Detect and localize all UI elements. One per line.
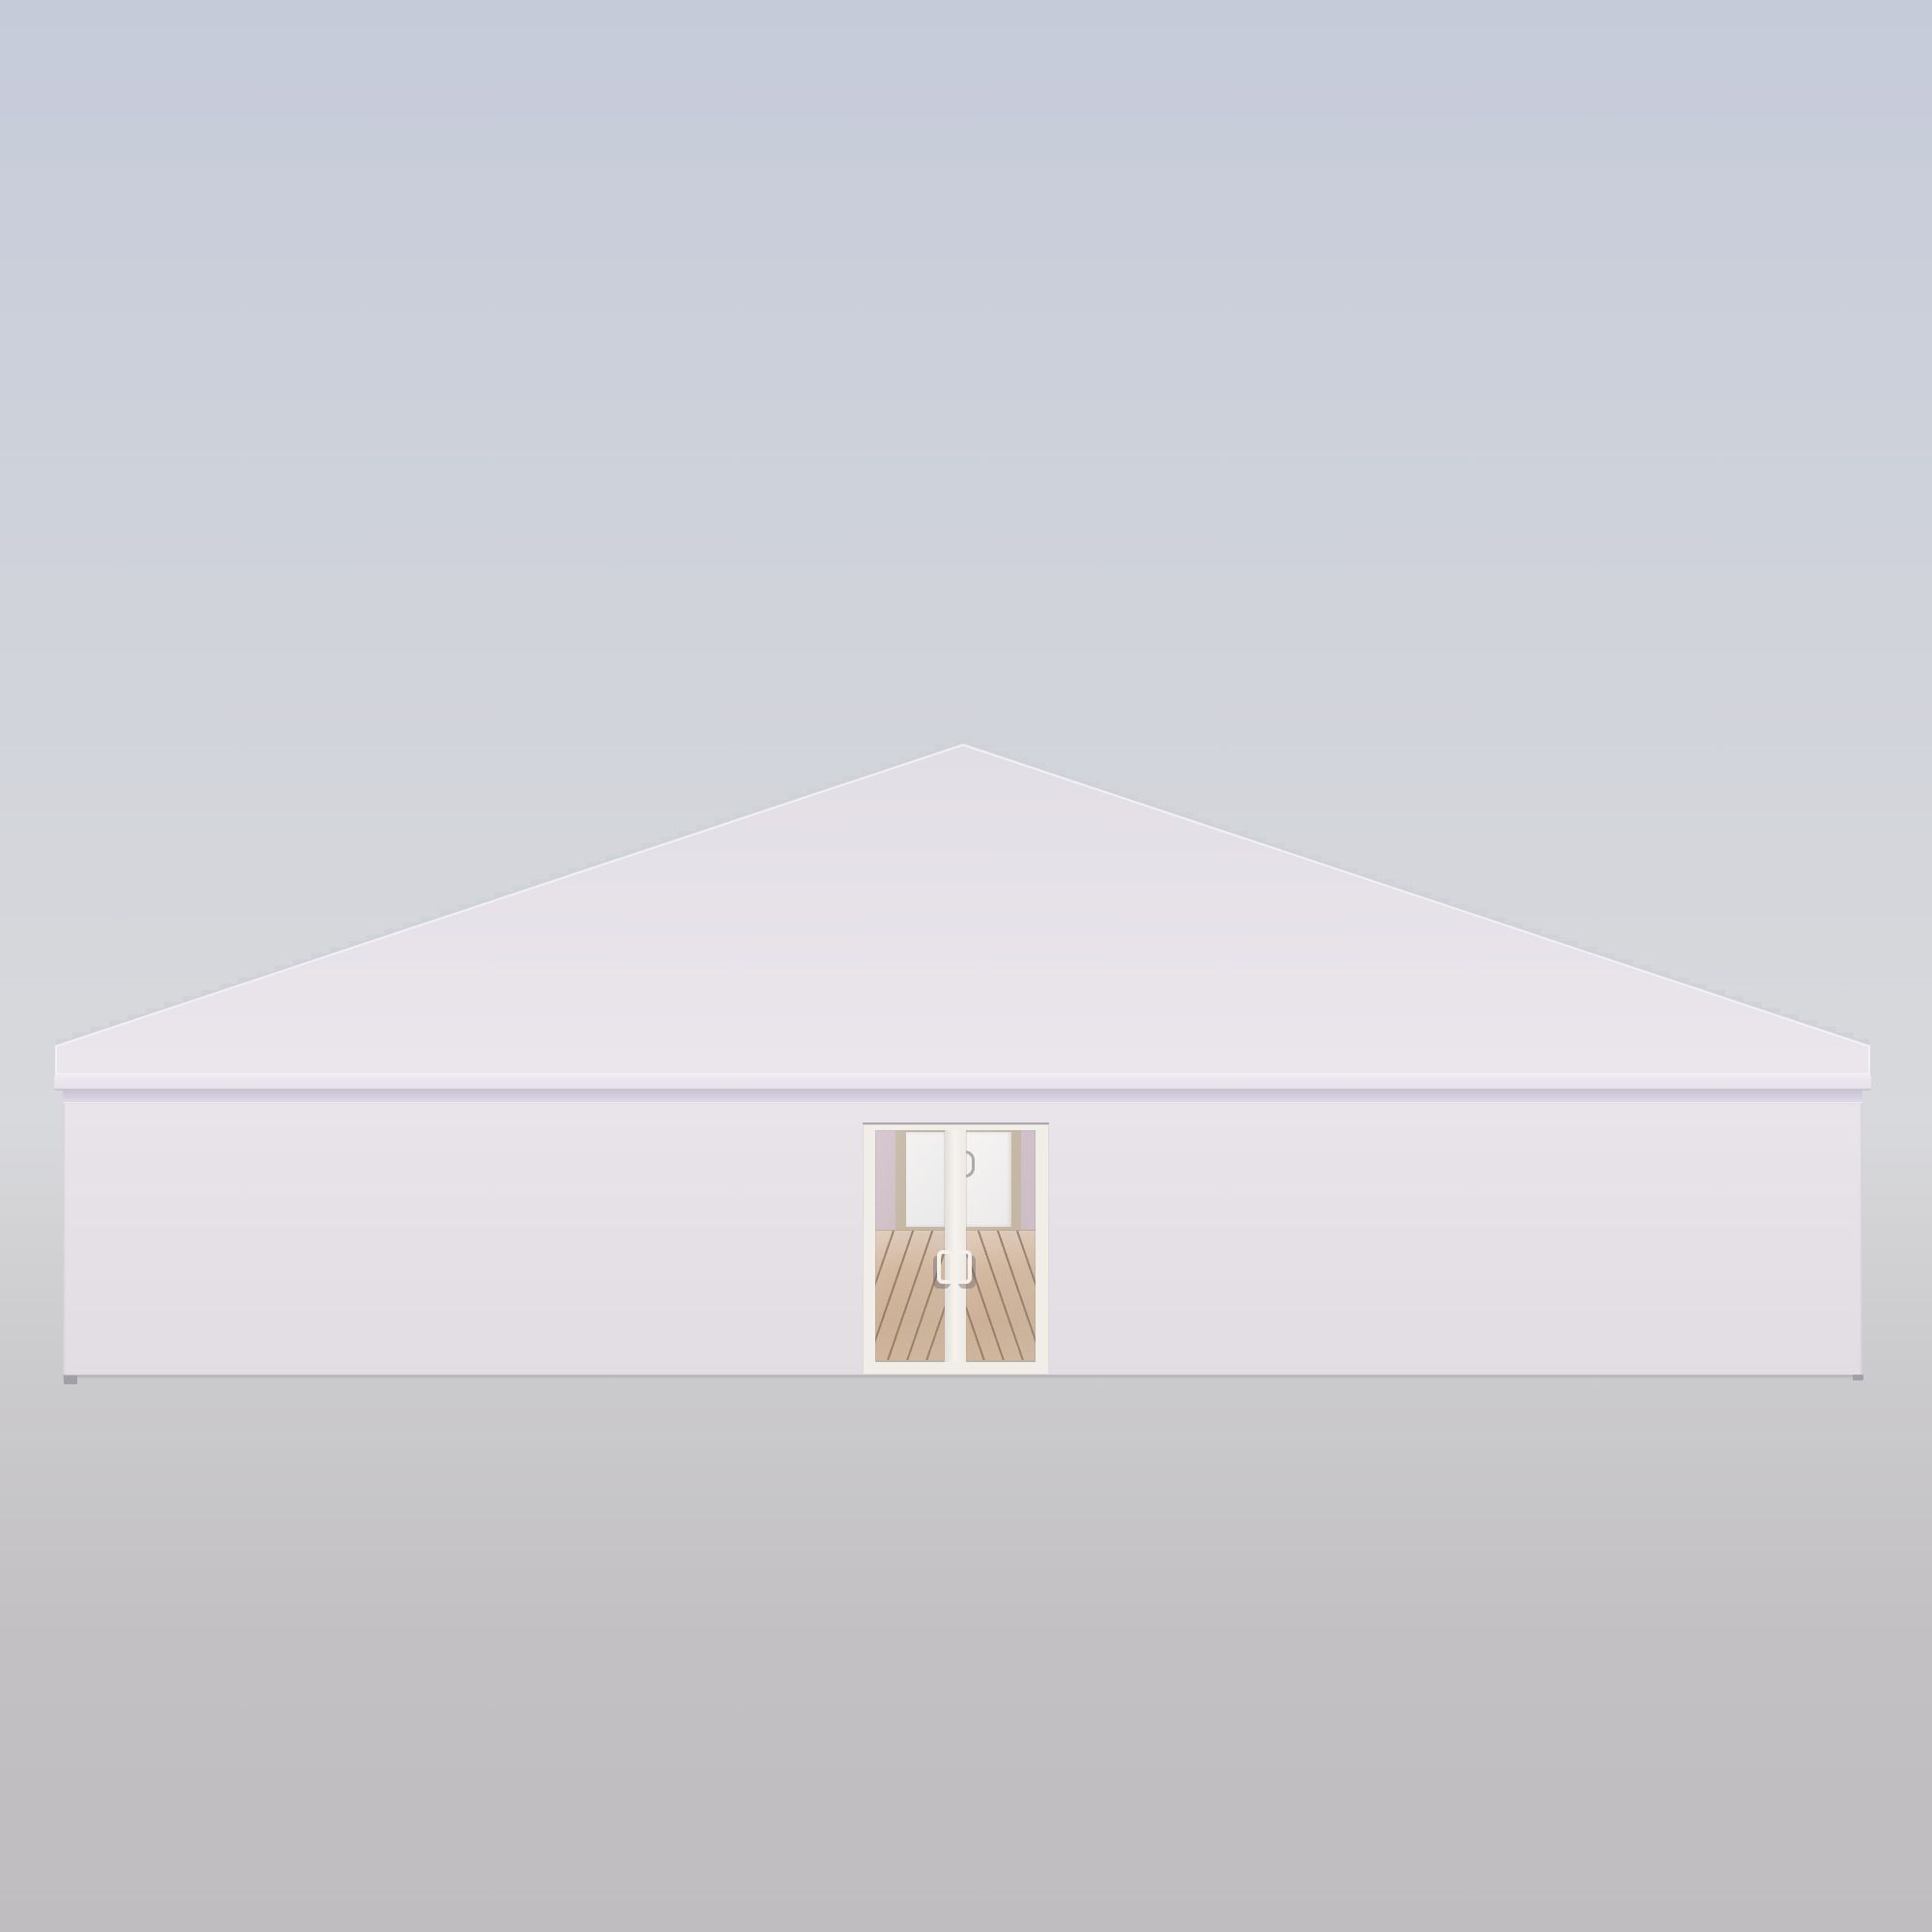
glass-double-door[interactable] [863, 1122, 1049, 1375]
eave-shadow-strip [63, 1091, 1862, 1102]
ground-contact-shadow [63, 1375, 1862, 1379]
door-handle-right[interactable] [954, 1250, 972, 1284]
door-center-mullion [945, 1130, 966, 1362]
roof-fascia-bar [54, 1074, 1871, 1091]
base-foot-left [64, 1376, 77, 1384]
door-glass-pane-right [966, 1130, 1036, 1362]
base-foot-right [1853, 1375, 1863, 1380]
roof-face [56, 745, 1869, 1074]
door-handle-left[interactable] [937, 1250, 954, 1284]
3d-render-viewport[interactable] [0, 0, 1932, 1932]
door-glass-pane-left [875, 1130, 945, 1362]
tent-roof [0, 0, 1932, 1932]
